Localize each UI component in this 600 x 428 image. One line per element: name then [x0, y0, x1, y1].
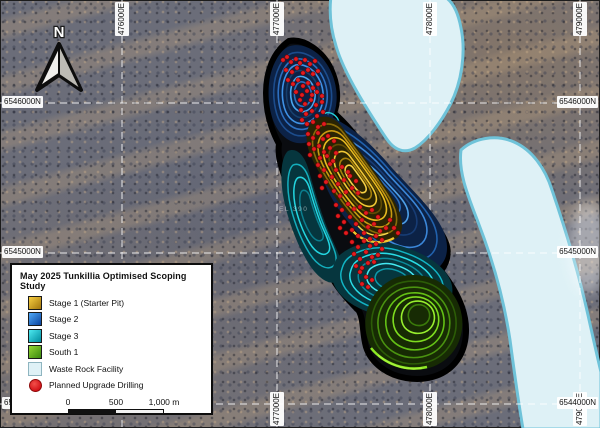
north-arrow-label: N	[54, 24, 65, 41]
legend-swatch-south1	[28, 345, 42, 359]
scale-tick-1000: 1,000 m	[149, 397, 180, 407]
legend-title: May 2025 Tunkillia Optimised Scoping Stu…	[20, 271, 203, 291]
grid-label: 479000E	[573, 2, 587, 36]
grid-label: 6545000N	[557, 246, 598, 258]
legend-item-waste: Waste Rock Facility	[20, 362, 203, 375]
legend-item-stage2: Stage 2	[20, 313, 203, 326]
scale-tick-0: 0	[66, 397, 71, 407]
grid-label: 6546000N	[557, 96, 598, 108]
drill-symbol-icon	[29, 379, 42, 392]
legend-panel: May 2025 Tunkillia Optimised Scoping Stu…	[10, 263, 213, 415]
scale-tick-500: 500	[109, 397, 123, 407]
north-arrow: N	[31, 20, 87, 105]
legend-label-stage3: Stage 3	[49, 331, 78, 341]
legend-swatch-stage1	[28, 296, 42, 310]
grid-label: 478000E	[423, 2, 437, 36]
map-faint-label: EL 390	[279, 206, 308, 213]
scale-bar-segments	[68, 409, 164, 414]
legend-swatch-stage3	[28, 329, 42, 343]
grid-label: 477000E	[270, 2, 284, 36]
legend-label-drilling: Planned Upgrade Drilling	[49, 380, 144, 390]
legend-item-drilling: Planned Upgrade Drilling	[20, 379, 203, 392]
pit-south1-region	[365, 275, 462, 370]
scale-bar: 0 500 1,000 m	[68, 398, 164, 416]
legend-item-stage3: Stage 3	[20, 329, 203, 342]
grid-label: 6545000N	[2, 246, 43, 258]
grid-label: 477000E	[270, 392, 284, 426]
legend-label-stage2: Stage 2	[49, 314, 78, 324]
legend-label-waste: Waste Rock Facility	[49, 364, 123, 374]
legend-item-stage1: Stage 1 (Starter Pit)	[20, 296, 203, 309]
legend-swatch-stage2	[28, 312, 42, 326]
legend-label-stage1: Stage 1 (Starter Pit)	[49, 298, 124, 308]
map-canvas[interactable]: EL 390 N May 2025 Tunkillia Optimised Sc…	[0, 0, 600, 428]
grid-label: 476000E	[115, 2, 129, 36]
grid-label: 478000E	[423, 392, 437, 426]
north-arrow-shade	[59, 44, 81, 90]
legend-label-south1: South 1	[49, 347, 78, 357]
grid-label: 6544000N	[557, 397, 598, 409]
legend-item-south1: South 1	[20, 346, 203, 359]
legend-swatch-waste	[28, 362, 42, 376]
